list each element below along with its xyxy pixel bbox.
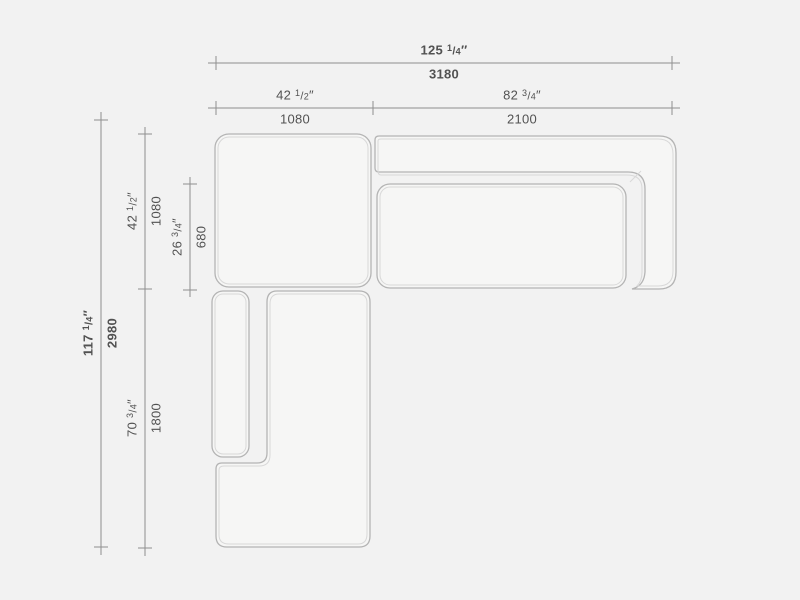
dim-inches: 82 3/4″ [503, 89, 541, 108]
dim-millimeters: 1800 [145, 399, 164, 437]
dim-millimeters: 1080 [145, 192, 164, 230]
seat-cushion-outline [377, 184, 626, 288]
dim-inches: 117 1/4″ [82, 310, 101, 356]
plan-drawing-svg [0, 0, 800, 600]
sofa-dimension-drawing: 125 1/4″ 3180 42 1/2″ 1080 82 3/4″ 2100 … [0, 0, 800, 600]
dim-label-seat-depth: 26 3/4″ 680 [171, 218, 210, 256]
dim-label-right-module-width: 82 3/4″ 2100 [503, 89, 541, 128]
dim-millimeters: 680 [190, 218, 209, 256]
dim-label-chaise-length: 70 3/4″ 1800 [126, 399, 165, 437]
corner-module [215, 134, 371, 287]
right-module-seat-cushion [377, 184, 626, 288]
dim-inches: 125 1/4″ [420, 44, 467, 63]
dim-millimeters: 2980 [101, 310, 120, 356]
dim-inches: 26 3/4″ [171, 218, 190, 256]
dim-label-overall-depth: 117 1/4″ 2980 [82, 310, 121, 356]
dim-label-corner-module-depth: 42 1/2″ 1080 [126, 192, 165, 230]
dim-label-left-module-width: 42 1/2″ 1080 [276, 89, 314, 128]
dim-millimeters: 1080 [276, 108, 314, 127]
dim-millimeters: 2100 [503, 108, 541, 127]
dimension-lines [94, 56, 680, 556]
corner-module-outline [215, 134, 371, 287]
dim-inches: 42 1/2″ [276, 89, 314, 108]
dim-inches: 42 1/2″ [126, 192, 145, 230]
dim-label-overall-width: 125 1/4″ 3180 [420, 44, 467, 83]
chaise-armrest-outline [212, 291, 249, 457]
chaise-armrest [212, 291, 249, 457]
dim-millimeters: 3180 [420, 63, 467, 82]
dim-inches: 70 3/4″ [126, 399, 145, 437]
